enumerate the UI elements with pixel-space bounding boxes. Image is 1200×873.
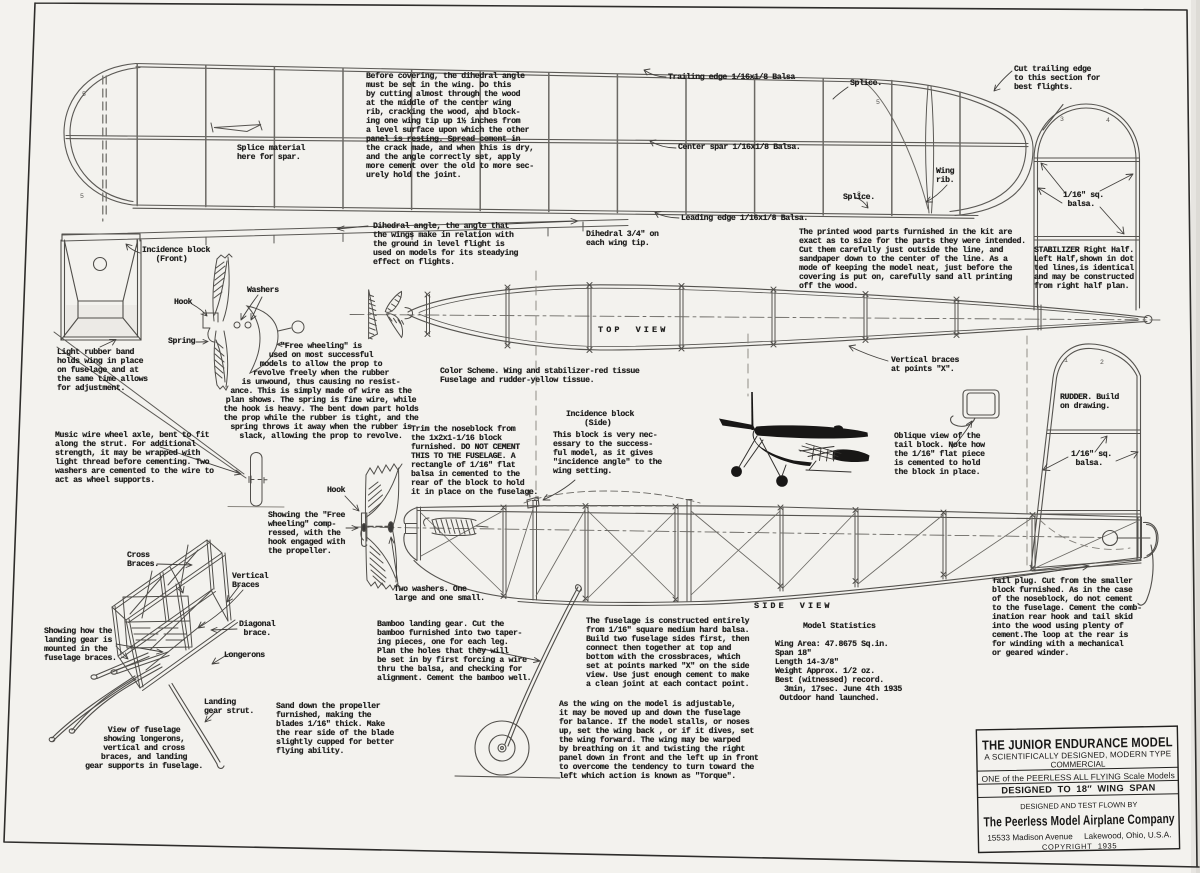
svg-text:5: 5 — [82, 91, 86, 98]
svg-text:4: 4 — [1106, 117, 1110, 124]
svg-text:3: 3 — [1060, 116, 1064, 123]
svg-text:5: 5 — [80, 193, 84, 200]
svg-text:2: 2 — [1100, 359, 1104, 366]
svg-text:5: 5 — [876, 99, 880, 106]
